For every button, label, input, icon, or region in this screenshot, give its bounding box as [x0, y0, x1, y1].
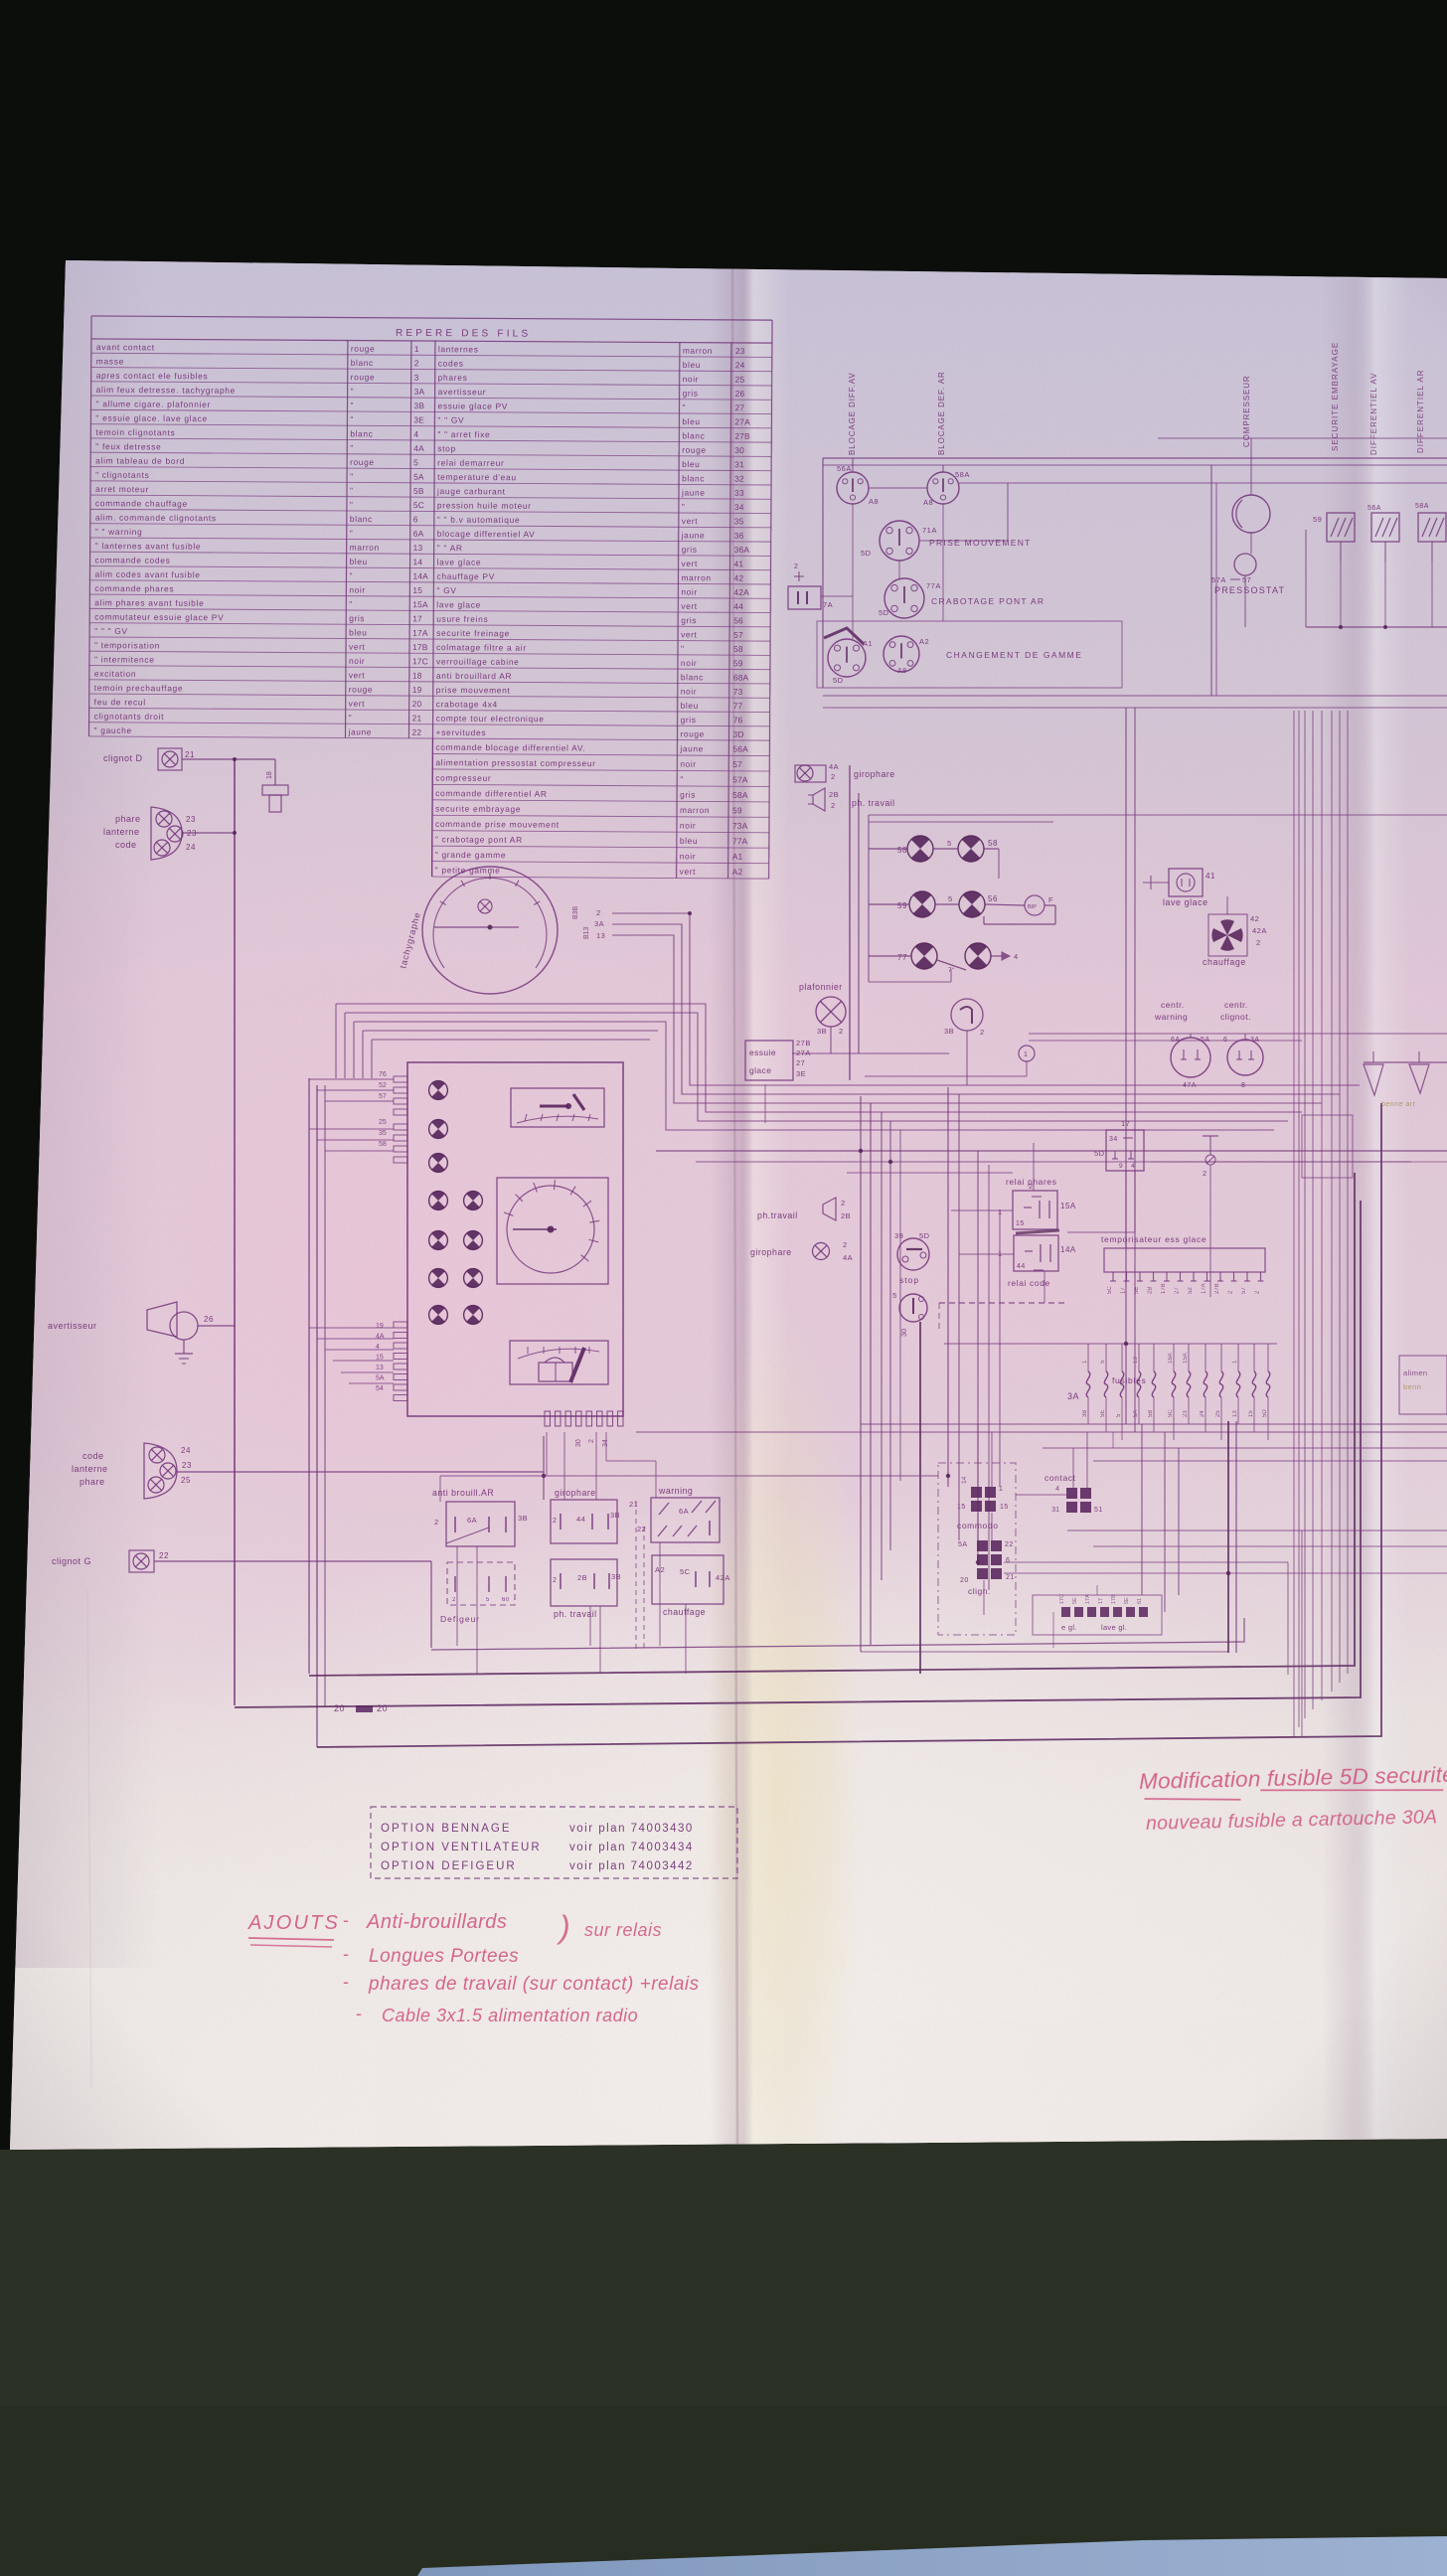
svg-text:ʺ: ʺ: [351, 386, 355, 396]
svg-text:2: 2: [1256, 938, 1261, 947]
svg-text:2: 2: [843, 1240, 848, 1249]
svg-text:34: 34: [1109, 1136, 1118, 1143]
svg-text:2: 2: [794, 563, 798, 570]
svg-text:apres contact ele fusibles: apres contact ele fusibles: [96, 371, 209, 382]
svg-text:ʺ: ʺ: [682, 502, 686, 512]
svg-text:23: 23: [182, 1461, 192, 1470]
svg-text:SECURITE EMBRAYAGE: SECURITE EMBRAYAGE: [1331, 342, 1340, 451]
svg-text:DIFFERENTIEL AV: DIFFERENTIEL AV: [1369, 373, 1378, 455]
svg-text:contact: contact: [1045, 1473, 1076, 1483]
svg-text:44: 44: [576, 1515, 585, 1524]
svg-text:vert: vert: [349, 699, 365, 709]
svg-text:4A: 4A: [376, 1334, 385, 1341]
svg-text:gris: gris: [682, 545, 698, 555]
svg-text:jaune: jaune: [679, 743, 704, 753]
svg-text:2: 2: [452, 1597, 456, 1603]
svg-text:lave glace: lave glace: [437, 557, 482, 566]
svg-text:3B: 3B: [817, 1027, 827, 1036]
svg-text:31: 31: [734, 459, 744, 469]
svg-text:alim codes avant fusible: alim codes avant fusible: [94, 569, 200, 580]
svg-text:sur relais: sur relais: [584, 1920, 662, 1940]
svg-text:39: 39: [894, 1231, 903, 1240]
svg-text:blanc: blanc: [351, 358, 374, 368]
svg-text:-: -: [343, 1972, 349, 1992]
svg-text:-: -: [343, 1910, 349, 1930]
svg-text:BLOCAGE DIFF.AV: BLOCAGE DIFF.AV: [848, 372, 857, 455]
svg-text:jaune: jaune: [681, 488, 706, 498]
svg-text:6A: 6A: [679, 1507, 689, 1516]
svg-text:44: 44: [733, 601, 743, 611]
svg-text:76: 76: [379, 1071, 387, 1078]
svg-text:girophare: girophare: [750, 1247, 792, 1257]
svg-text:girophare: girophare: [555, 1488, 596, 1498]
svg-text:5C: 5C: [413, 500, 424, 510]
svg-text:masse: masse: [96, 356, 124, 366]
svg-text:4A: 4A: [843, 1253, 853, 1262]
svg-text:41: 41: [1206, 872, 1215, 881]
svg-text:16A: 16A: [1168, 1353, 1174, 1364]
svg-text:ʺ: ʺ: [350, 401, 354, 410]
svg-text:2B: 2B: [841, 1211, 851, 1220]
svg-text:22: 22: [411, 727, 421, 737]
svg-text:4A: 4A: [413, 443, 424, 453]
svg-text:ʺ gauche: ʺ gauche: [93, 725, 131, 735]
svg-text:14A: 14A: [412, 571, 428, 581]
svg-text:2: 2: [831, 772, 836, 781]
svg-text:alimentation pressostat compre: alimentation pressostat compresseur: [435, 757, 595, 768]
svg-text:rouge: rouge: [351, 344, 375, 354]
svg-text:3A: 3A: [594, 919, 604, 928]
svg-text:ʺ feux detresse: ʺ feux detresse: [95, 441, 161, 451]
svg-text:lave gl.: lave gl.: [1101, 1623, 1127, 1632]
svg-text:5D: 5D: [833, 676, 844, 685]
svg-text:27: 27: [1175, 1287, 1181, 1294]
svg-text:bleu: bleu: [350, 557, 368, 566]
svg-text:OPTION VENTILATEUR: OPTION VENTILATEUR: [381, 1842, 542, 1853]
svg-text:4: 4: [1014, 952, 1019, 961]
svg-text:PRISE MOUVEMENT: PRISE MOUVEMENT: [929, 538, 1032, 548]
svg-text:57: 57: [1241, 1287, 1247, 1294]
svg-text:26: 26: [735, 389, 745, 399]
svg-text:33: 33: [734, 488, 744, 498]
svg-text:41: 41: [734, 559, 744, 568]
svg-text:lanterne: lanterne: [103, 827, 140, 837]
svg-text:BIP: BIP: [1028, 904, 1037, 910]
svg-text:23: 23: [735, 346, 745, 356]
svg-text:-: -: [343, 1944, 349, 1964]
svg-text:e gl.: e gl.: [1061, 1623, 1077, 1632]
svg-text:17B: 17B: [412, 642, 428, 652]
svg-text:rouge: rouge: [349, 684, 373, 694]
svg-text:34: 34: [734, 502, 744, 512]
svg-text:ʺ clignotants: ʺ clignotants: [95, 470, 150, 480]
svg-text:13: 13: [1232, 1410, 1238, 1417]
svg-text:bleu: bleu: [683, 360, 701, 370]
svg-text:commande chauffage: commande chauffage: [95, 498, 188, 509]
svg-text:47A: 47A: [1183, 1082, 1197, 1089]
svg-text:27B: 27B: [1214, 1283, 1220, 1294]
svg-text:15A: 15A: [1060, 1202, 1076, 1210]
svg-text:gris: gris: [349, 613, 365, 623]
svg-text:CRABOTAGE PONT AR: CRABOTAGE PONT AR: [931, 596, 1045, 606]
svg-text:17A: 17A: [1202, 1283, 1207, 1294]
svg-text:54: 54: [376, 1385, 384, 1392]
svg-text:commutateur essuie glace PV: commutateur essuie glace PV: [94, 611, 224, 622]
svg-text:22: 22: [1005, 1541, 1014, 1548]
svg-text:commande phares: commande phares: [94, 583, 174, 593]
svg-text:noir: noir: [680, 820, 696, 830]
svg-text:42A: 42A: [716, 1573, 730, 1582]
svg-text:colmatage filtre a air: colmatage filtre a air: [436, 642, 527, 653]
svg-text:3D: 3D: [732, 729, 743, 739]
svg-text:blanc: blanc: [350, 514, 373, 524]
svg-text:excitation: excitation: [94, 669, 136, 679]
svg-text:chauffage PV: chauffage PV: [436, 571, 495, 581]
svg-text:14: 14: [413, 557, 423, 566]
svg-text:vert: vert: [682, 559, 698, 568]
svg-text:arret moteur: arret moteur: [95, 484, 149, 494]
svg-text:ʺ: ʺ: [350, 500, 354, 510]
svg-text:2: 2: [588, 1439, 595, 1443]
svg-text:temoin clignotants: temoin clignotants: [95, 427, 175, 437]
svg-text:A8: A8: [869, 497, 879, 506]
svg-text:pression huile moteur: pression huile moteur: [437, 500, 532, 511]
svg-text:5E: 5E: [1134, 1287, 1140, 1294]
svg-text:57: 57: [1242, 575, 1251, 584]
svg-text:3A: 3A: [1067, 1391, 1079, 1401]
svg-text:17: 17: [412, 613, 422, 623]
svg-text:5: 5: [413, 457, 418, 467]
svg-text:commande blocage differentiel: commande blocage differentiel AV.: [435, 742, 585, 753]
svg-text:phares de travail (sur contact: phares de travail (sur contact) +relais: [368, 1974, 700, 1995]
svg-text:7A: 7A: [823, 600, 833, 609]
svg-text:13: 13: [596, 931, 605, 940]
svg-text:phares: phares: [438, 373, 468, 383]
svg-text:5D: 5D: [861, 549, 872, 558]
svg-text:ʺ ʺ arret fixe: ʺ ʺ arret fixe: [437, 429, 490, 439]
svg-text:2: 2: [553, 1577, 557, 1584]
svg-text:Cable 3x1.5 alimentation radi: Cable 3x1.5 alimentation radio: [382, 2006, 638, 2025]
svg-text:A2: A2: [919, 637, 929, 646]
svg-text:56: 56: [733, 615, 743, 625]
svg-text:73: 73: [733, 687, 743, 697]
svg-text:code: code: [115, 840, 137, 850]
svg-text:5E: 5E: [1124, 1597, 1130, 1604]
svg-text:44: 44: [1017, 1263, 1026, 1270]
svg-text:77A: 77A: [926, 581, 941, 590]
svg-text:OPTION BENNAGE: OPTION BENNAGE: [381, 1823, 512, 1835]
svg-text:OPTION DEFIGEUR: OPTION DEFIGEUR: [381, 1860, 517, 1872]
svg-text:benn: benn: [1403, 1382, 1421, 1391]
svg-text:A8: A8: [923, 498, 933, 507]
svg-text:59: 59: [1313, 515, 1322, 524]
svg-text:56: 56: [988, 894, 998, 903]
svg-text:2: 2: [841, 1199, 846, 1207]
svg-text:36A: 36A: [734, 545, 750, 555]
svg-text:A8: A8: [897, 668, 907, 675]
svg-text:Anti-brouillards: Anti-brouillards: [366, 1911, 507, 1933]
svg-text:2B: 2B: [829, 790, 839, 799]
svg-text:prise mouvement: prise mouvement: [436, 685, 511, 695]
svg-text:3A: 3A: [1250, 1037, 1260, 1044]
svg-text:avertisseur: avertisseur: [438, 387, 487, 397]
svg-text:42A: 42A: [1252, 926, 1267, 935]
svg-text:COMPRESSEUR: COMPRESSEUR: [1242, 375, 1251, 447]
svg-text:essuie glace PV: essuie glace PV: [437, 401, 508, 410]
svg-text:7ʺ: 7ʺ: [948, 966, 955, 974]
svg-text:temperature d'eau: temperature d'eau: [437, 472, 517, 482]
svg-text:anti brouillard AR: anti brouillard AR: [436, 671, 512, 681]
svg-text:usure freins: usure freins: [436, 614, 488, 624]
svg-text:ʺ ʺ b.v automatique: ʺ ʺ b.v automatique: [437, 515, 521, 526]
svg-text:58: 58: [733, 644, 743, 654]
svg-text:fusibles: fusibles: [1112, 1375, 1146, 1385]
svg-text:essuie: essuie: [749, 1047, 776, 1057]
svg-text:ʺ ʺ GV: ʺ ʺ GV: [437, 415, 464, 425]
svg-text:3B: 3B: [611, 1572, 621, 1581]
svg-text:4: 4: [1131, 1163, 1135, 1170]
svg-text:2B: 2B: [1148, 1287, 1154, 1294]
svg-text:phare: phare: [115, 814, 141, 824]
svg-text:30: 30: [575, 1439, 582, 1447]
svg-text:6A: 6A: [1171, 1037, 1181, 1044]
svg-text:21: 21: [185, 750, 195, 759]
svg-text:2: 2: [831, 801, 836, 810]
svg-text:15: 15: [376, 1355, 384, 1362]
svg-text:1: 1: [999, 1486, 1003, 1493]
svg-text:clignot G: clignot G: [52, 1556, 91, 1566]
svg-text:bleu: bleu: [681, 701, 699, 711]
svg-text:centr.: centr.: [1161, 1000, 1185, 1010]
svg-text:rouge: rouge: [351, 372, 375, 382]
svg-text:centr.: centr.: [1224, 1000, 1248, 1010]
svg-text:stop: stop: [899, 1275, 919, 1285]
svg-text:68A: 68A: [733, 673, 749, 683]
svg-text:ʺ essuie glace. lave glace: ʺ essuie glace. lave glace: [95, 412, 207, 423]
svg-text:compte tour electronique: compte tour electronique: [436, 714, 545, 724]
svg-text:benne arr: benne arr: [1381, 1101, 1416, 1108]
svg-text:3B: 3B: [518, 1514, 528, 1523]
svg-text:24: 24: [1200, 1410, 1206, 1417]
svg-text:25: 25: [735, 375, 745, 385]
svg-text:2: 2: [434, 1518, 439, 1527]
svg-text:girophare: girophare: [854, 769, 895, 779]
svg-text:5: 5: [486, 1597, 490, 1603]
svg-text:chauffage: chauffage: [1203, 957, 1246, 967]
svg-text:1: 1: [998, 1207, 1003, 1216]
svg-text:5C: 5C: [1168, 1409, 1174, 1417]
svg-text:17B: 17B: [1111, 1594, 1117, 1604]
svg-text:27A: 27A: [734, 416, 750, 426]
svg-text:F: F: [1048, 895, 1053, 904]
svg-text:2: 2: [839, 1027, 844, 1036]
svg-text:B3B: B3B: [572, 905, 579, 919]
svg-text:voir plan 74003434: voir plan 74003434: [569, 1842, 694, 1853]
svg-text:blanc: blanc: [682, 430, 705, 440]
svg-text:AJOUTS: AJOUTS: [247, 1912, 340, 1934]
svg-text:56A: 56A: [837, 464, 852, 473]
svg-text:60: 60: [502, 1597, 510, 1603]
svg-text:17: 17: [1121, 1287, 1127, 1294]
svg-text:warning: warning: [658, 1486, 693, 1496]
svg-text:REPERE DES FILS: REPERE DES FILS: [396, 328, 531, 340]
svg-text:3A: 3A: [414, 387, 425, 397]
svg-text:glace: glace: [749, 1065, 771, 1075]
svg-text:4A: 4A: [829, 762, 839, 771]
svg-text:commande codes: commande codes: [95, 555, 171, 564]
svg-text:gris: gris: [681, 615, 697, 625]
svg-text:52: 52: [1188, 1287, 1194, 1294]
svg-text:1: 1: [414, 344, 419, 354]
svg-text:5: 5: [892, 1291, 897, 1300]
svg-text:Defigeur: Defigeur: [440, 1614, 480, 1624]
svg-text:3B: 3B: [610, 1511, 620, 1520]
svg-text:ʺ lanternes avant fusible: ʺ lanternes avant fusible: [95, 541, 202, 552]
svg-text:20: 20: [377, 1703, 388, 1713]
svg-text:noir: noir: [680, 851, 696, 861]
svg-text:58: 58: [897, 846, 907, 855]
svg-text:17A: 17A: [1085, 1594, 1091, 1604]
svg-text:58A: 58A: [955, 470, 970, 479]
svg-text:alim feux detresse. tachygraph: alim feux detresse. tachygraphe: [96, 385, 236, 396]
svg-text:24: 24: [735, 360, 745, 370]
svg-text:59: 59: [733, 658, 743, 668]
svg-text:3E: 3E: [413, 414, 424, 424]
svg-text:24: 24: [186, 843, 196, 852]
svg-text:5B: 5B: [413, 486, 424, 496]
svg-text:gris: gris: [681, 715, 697, 724]
svg-text:27B: 27B: [734, 431, 750, 441]
svg-text:crabotage 4x4: crabotage 4x4: [436, 699, 498, 709]
svg-text:marron: marron: [350, 543, 380, 553]
svg-text:20: 20: [412, 699, 422, 709]
svg-text:ʺ ʺ ʺ GV: ʺ ʺ ʺ GV: [94, 626, 128, 636]
svg-text:42A: 42A: [733, 587, 749, 597]
svg-text:6: 6: [1223, 1037, 1227, 1044]
svg-text:5A: 5A: [1201, 1037, 1210, 1044]
svg-text:4: 4: [376, 1344, 380, 1351]
svg-text:5D: 5D: [919, 1231, 930, 1240]
svg-text:58A: 58A: [732, 790, 748, 800]
svg-text:feu de recul: feu de recul: [94, 697, 146, 707]
svg-text:lanterne: lanterne: [72, 1464, 108, 1474]
svg-text:58A: 58A: [1415, 503, 1429, 510]
svg-text:5A: 5A: [376, 1375, 385, 1382]
svg-text:blanc: blanc: [682, 473, 705, 483]
svg-text:71A: 71A: [922, 526, 937, 535]
svg-text:5A: 5A: [413, 472, 424, 482]
svg-text:DIFFERENTIEL AR: DIFFERENTIEL AR: [1416, 370, 1425, 454]
svg-text:code: code: [82, 1451, 104, 1461]
svg-text:noir: noir: [683, 374, 699, 384]
svg-text:17: 17: [1121, 1119, 1130, 1128]
svg-text:8: 8: [1241, 1082, 1245, 1089]
svg-text:jauge carburant: jauge carburant: [436, 486, 506, 496]
svg-text:5D: 5D: [879, 608, 889, 617]
svg-text:5C: 5C: [680, 1567, 691, 1576]
svg-text:bleu: bleu: [680, 836, 698, 846]
svg-text:rouge: rouge: [682, 445, 706, 455]
svg-text:A1: A1: [863, 639, 873, 648]
svg-text:58: 58: [379, 1141, 387, 1148]
svg-text:blanc: blanc: [350, 428, 373, 438]
svg-text:gris: gris: [683, 389, 699, 399]
svg-text:2: 2: [414, 358, 419, 368]
svg-text:A1: A1: [732, 852, 743, 862]
svg-text:vert: vert: [349, 670, 365, 680]
svg-text:13: 13: [376, 1365, 384, 1371]
svg-text:ʺ: ʺ: [681, 644, 685, 654]
svg-text:clignotants droit: clignotants droit: [94, 711, 165, 721]
svg-text:42: 42: [1250, 914, 1259, 923]
svg-text:CHANGEMENT DE GAMME: CHANGEMENT DE GAMME: [946, 650, 1082, 660]
svg-text:voir plan 74003430: voir plan 74003430: [569, 1823, 694, 1835]
svg-text:ʺ ʺ AR: ʺ ʺ AR: [437, 543, 463, 553]
svg-text:25: 25: [379, 1119, 387, 1126]
svg-text:ʺ crabotage pont AR: ʺ crabotage pont AR: [435, 834, 523, 845]
svg-text:marron: marron: [683, 346, 713, 356]
svg-text:30: 30: [899, 1329, 908, 1337]
svg-text:ʺ GV: ʺ GV: [436, 585, 456, 595]
svg-text:5A: 5A: [958, 1541, 968, 1548]
svg-text:blanc: blanc: [681, 672, 704, 682]
svg-text:31: 31: [1051, 1507, 1059, 1514]
svg-text:5D: 5D: [1262, 1409, 1268, 1417]
svg-text:27: 27: [796, 1058, 805, 1067]
svg-text:B13: B13: [583, 926, 590, 939]
svg-text:57: 57: [379, 1093, 387, 1100]
svg-text:15: 15: [1248, 1410, 1254, 1417]
svg-text:17A: 17A: [412, 628, 428, 638]
svg-text:blocage differentiel AV: blocage differentiel AV: [437, 529, 536, 540]
svg-text:23: 23: [186, 815, 196, 824]
svg-text:ʺ: ʺ: [349, 599, 353, 609]
svg-text:lave glace: lave glace: [436, 599, 481, 609]
svg-text:9: 9: [1119, 1163, 1123, 1170]
svg-text:ph.travail: ph.travail: [757, 1210, 798, 1220]
svg-text:17B: 17B: [1161, 1283, 1167, 1294]
svg-text:18: 18: [412, 671, 422, 681]
svg-text:ʺ allume cigare. plafonnier: ʺ allume cigare. plafonnier: [96, 399, 212, 409]
svg-text:bleu: bleu: [349, 627, 367, 637]
svg-text:5C: 5C: [1107, 1286, 1113, 1294]
svg-text:vert: vert: [681, 629, 697, 639]
svg-text:4: 4: [1055, 1486, 1059, 1493]
svg-text:22: 22: [159, 1551, 169, 1560]
svg-text:24: 24: [181, 1446, 191, 1455]
svg-text:5: 5: [948, 894, 953, 903]
svg-text:bleu: bleu: [682, 416, 700, 426]
svg-text:6A: 6A: [413, 529, 424, 539]
svg-text:21: 21: [1006, 1574, 1015, 1581]
svg-text:36: 36: [734, 531, 744, 541]
svg-text:securite embrayage: securite embrayage: [435, 803, 521, 814]
svg-text:3B: 3B: [1082, 1410, 1088, 1417]
svg-text:5D: 5D: [1094, 1149, 1105, 1158]
svg-text:15A: 15A: [412, 599, 428, 609]
svg-text:17C: 17C: [412, 656, 428, 666]
svg-text:alimen: alimen: [1403, 1368, 1428, 1377]
svg-text:27A: 27A: [796, 1048, 811, 1057]
svg-text:77A: 77A: [732, 836, 748, 846]
svg-text:57A: 57A: [1211, 575, 1226, 584]
svg-text:lanternes: lanternes: [438, 344, 479, 354]
svg-text:alim tableau de bord: alim tableau de bord: [95, 455, 185, 466]
svg-text:35: 35: [379, 1130, 387, 1137]
svg-text:15: 15: [412, 585, 422, 595]
svg-text:5E: 5E: [1100, 1410, 1106, 1417]
svg-text:3E: 3E: [796, 1069, 806, 1078]
